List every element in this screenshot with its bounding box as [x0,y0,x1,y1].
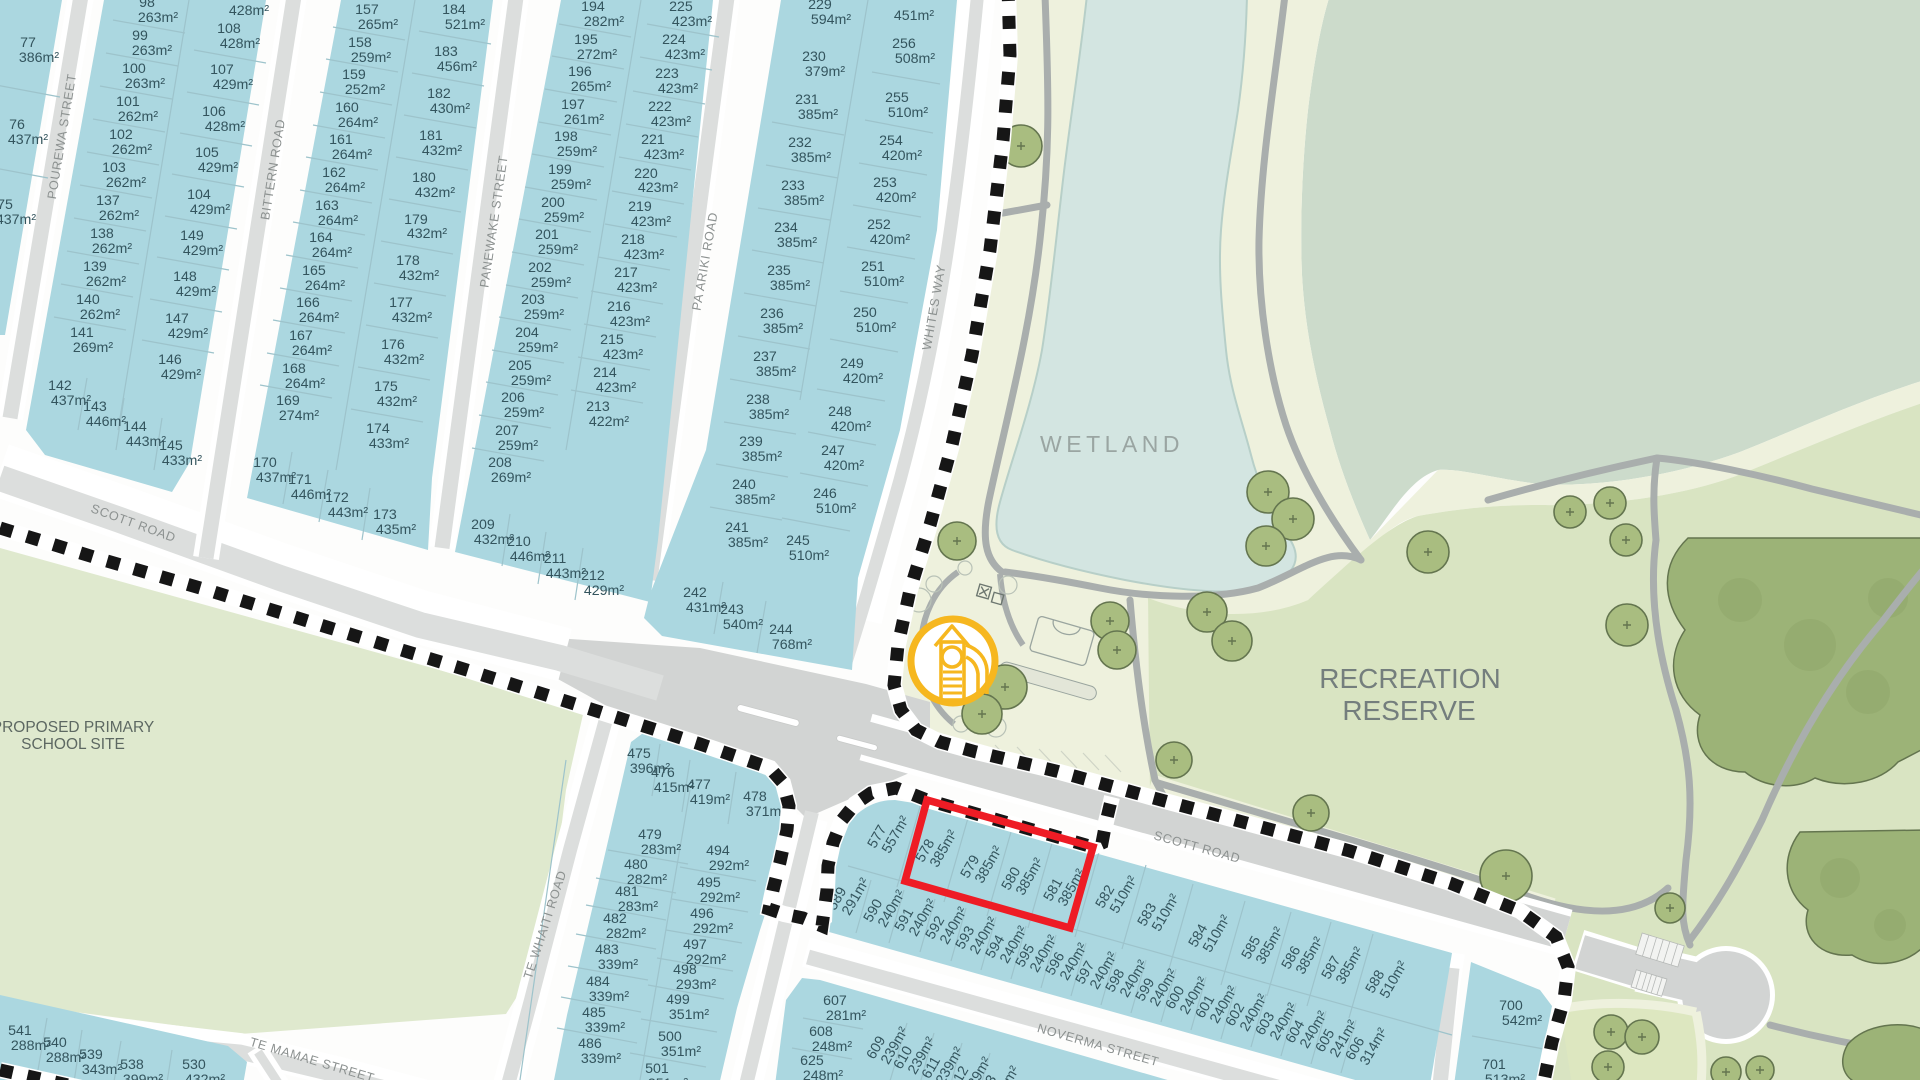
svg-text:513m²: 513m² [1485,1072,1525,1080]
svg-text:263m²: 263m² [125,76,165,92]
svg-text:245: 245 [786,533,810,549]
svg-text:141: 141 [70,325,94,341]
svg-text:158: 158 [348,35,372,51]
svg-text:423m²: 423m² [672,14,712,30]
svg-text:423m²: 423m² [638,180,678,196]
svg-text:137: 137 [96,193,120,209]
svg-text:176: 176 [381,337,405,353]
svg-text:385m²: 385m² [777,235,817,251]
svg-text:423m²: 423m² [610,314,650,330]
svg-text:385m²: 385m² [791,150,831,166]
svg-text:420m²: 420m² [831,419,871,435]
svg-text:107: 107 [210,62,234,78]
svg-text:253: 253 [873,175,897,191]
svg-text:420m²: 420m² [870,232,910,248]
svg-text:423m²: 423m² [658,81,698,97]
svg-text:108: 108 [217,21,241,37]
svg-text:231: 231 [795,92,819,108]
svg-text:202: 202 [528,260,552,276]
svg-text:170: 170 [253,455,277,471]
svg-text:482: 482 [603,911,627,927]
svg-text:SCHOOL SITE: SCHOOL SITE [21,736,125,753]
svg-text:282m²: 282m² [584,14,624,30]
svg-text:175: 175 [374,379,398,395]
svg-text:475: 475 [627,746,651,762]
svg-text:443m²: 443m² [328,505,368,521]
svg-text:143: 143 [83,399,107,415]
svg-text:262m²: 262m² [112,142,152,158]
svg-text:432m²: 432m² [422,143,462,159]
svg-text:429m²: 429m² [176,284,216,300]
svg-text:432m²: 432m² [407,226,447,242]
svg-text:423m²: 423m² [596,380,636,396]
svg-text:250: 250 [853,305,877,321]
svg-text:259m²: 259m² [351,50,391,66]
svg-text:255: 255 [885,90,909,106]
svg-text:225: 225 [669,0,693,15]
svg-text:139: 139 [83,259,107,275]
svg-text:501: 501 [645,1061,669,1077]
svg-text:259m²: 259m² [544,210,584,226]
svg-text:249: 249 [840,356,864,372]
svg-text:237: 237 [753,349,777,365]
svg-text:530: 530 [182,1057,206,1073]
svg-text:484: 484 [586,974,610,990]
svg-text:171: 171 [288,472,312,488]
svg-text:269m²: 269m² [491,470,531,486]
svg-text:385m²: 385m² [749,407,789,423]
svg-text:147: 147 [165,311,189,327]
svg-text:385m²: 385m² [728,535,768,551]
svg-text:446m²: 446m² [86,414,126,430]
svg-text:422m²: 422m² [589,414,629,430]
svg-text:541: 541 [8,1023,32,1039]
svg-text:235: 235 [767,263,791,279]
svg-text:274m²: 274m² [279,408,319,424]
svg-text:478: 478 [743,789,767,805]
svg-text:510m²: 510m² [816,501,856,517]
svg-text:423m²: 423m² [603,347,643,363]
svg-text:224: 224 [662,32,686,48]
svg-text:385m²: 385m² [735,492,775,508]
svg-text:213: 213 [586,399,610,415]
svg-text:437m²: 437m² [0,212,36,228]
svg-text:212: 212 [581,568,605,584]
svg-text:207: 207 [495,423,519,439]
svg-text:428m²: 428m² [205,119,245,135]
svg-text:510m²: 510m² [856,320,896,336]
svg-text:510m²: 510m² [888,105,928,121]
svg-text:437m²: 437m² [8,132,48,148]
svg-text:343m²: 343m² [82,1062,122,1078]
svg-text:292m²: 292m² [693,921,733,937]
svg-text:206: 206 [501,390,525,406]
svg-text:510m²: 510m² [864,274,904,290]
svg-text:105: 105 [195,145,219,161]
svg-text:283m²: 283m² [641,842,681,858]
svg-text:432m²: 432m² [377,394,417,410]
svg-text:510m²: 510m² [789,548,829,564]
svg-text:172: 172 [325,490,349,506]
svg-text:429m²: 429m² [183,243,223,259]
svg-text:479: 479 [638,827,662,843]
svg-text:145: 145 [159,438,183,454]
svg-text:166: 166 [296,295,320,311]
svg-text:264m²: 264m² [299,310,339,326]
svg-text:204: 204 [515,325,539,341]
svg-text:148: 148 [173,269,197,285]
svg-text:205: 205 [508,358,532,374]
svg-text:262m²: 262m² [99,208,139,224]
svg-text:339m²: 339m² [589,989,629,1005]
svg-text:215: 215 [600,332,624,348]
svg-text:163: 163 [315,198,339,214]
svg-text:385m²: 385m² [798,107,838,123]
svg-text:498: 498 [673,962,697,978]
svg-text:246: 246 [813,486,837,502]
svg-text:157: 157 [355,2,379,18]
svg-text:433m²: 433m² [369,436,409,452]
svg-text:252: 252 [867,217,891,233]
svg-text:209: 209 [471,517,495,533]
svg-text:100: 100 [122,61,146,77]
svg-text:292m²: 292m² [709,858,749,874]
svg-text:221: 221 [641,132,665,148]
svg-text:497: 497 [683,937,707,953]
svg-text:385m²: 385m² [756,364,796,380]
svg-text:230: 230 [802,49,826,65]
svg-text:159: 159 [342,67,366,83]
svg-text:259m²: 259m² [498,438,538,454]
svg-text:264m²: 264m² [292,343,332,359]
svg-text:521m²: 521m² [445,17,485,33]
svg-text:700: 700 [1499,998,1523,1014]
svg-text:499: 499 [666,992,690,1008]
svg-text:174: 174 [366,421,390,437]
svg-text:264m²: 264m² [332,147,372,163]
svg-text:540: 540 [43,1035,67,1051]
svg-text:168: 168 [282,361,306,377]
svg-text:430m²: 430m² [430,101,470,117]
svg-text:240: 240 [732,477,756,493]
svg-text:265m²: 265m² [358,17,398,33]
svg-text:432m²: 432m² [392,310,432,326]
svg-text:199: 199 [548,162,572,178]
svg-text:351m²: 351m² [661,1044,701,1060]
svg-text:144: 144 [123,419,147,435]
svg-text:142: 142 [48,378,72,394]
svg-text:768m²: 768m² [772,637,812,653]
svg-text:236: 236 [760,306,784,322]
svg-text:701: 701 [1482,1057,1506,1073]
svg-text:165: 165 [302,263,326,279]
svg-text:429m²: 429m² [213,77,253,93]
svg-text:429m²: 429m² [161,367,201,383]
svg-text:180: 180 [412,170,436,186]
svg-text:429m²: 429m² [190,202,230,218]
svg-text:262m²: 262m² [92,241,132,257]
svg-text:429m²: 429m² [168,326,208,342]
svg-text:99: 99 [132,28,148,44]
svg-text:293m²: 293m² [676,977,716,993]
svg-text:259m²: 259m² [524,307,564,323]
svg-text:538: 538 [120,1057,144,1073]
svg-text:263m²: 263m² [138,10,178,26]
svg-text:241: 241 [725,520,749,536]
svg-text:232: 232 [788,135,812,151]
svg-text:203: 203 [521,292,545,308]
svg-text:264m²: 264m² [305,278,345,294]
svg-text:264m²: 264m² [312,245,352,261]
svg-text:265m²: 265m² [571,79,611,95]
svg-text:162: 162 [322,165,346,181]
svg-text:339m²: 339m² [581,1051,621,1067]
svg-text:184: 184 [442,2,466,18]
svg-text:198: 198 [554,129,578,145]
svg-text:243: 243 [720,602,744,618]
svg-text:256: 256 [892,36,916,52]
svg-text:485: 485 [582,1005,606,1021]
svg-text:259m²: 259m² [504,405,544,421]
svg-text:292m²: 292m² [700,890,740,906]
svg-text:WETLAND: WETLAND [1040,431,1184,457]
svg-text:480: 480 [624,857,648,873]
svg-text:264m²: 264m² [325,180,365,196]
svg-text:456m²: 456m² [437,59,477,75]
svg-text:608: 608 [809,1024,833,1040]
svg-text:542m²: 542m² [1502,1013,1542,1029]
svg-text:423m²: 423m² [617,280,657,296]
svg-text:625: 625 [800,1053,824,1069]
svg-text:252m²: 252m² [345,82,385,98]
svg-text:PROPOSED PRIMARY: PROPOSED PRIMARY [0,719,154,736]
svg-text:433m²: 433m² [162,453,202,469]
svg-text:508m²: 508m² [895,51,935,67]
svg-text:138: 138 [90,226,114,242]
svg-text:196: 196 [568,64,592,80]
svg-text:149: 149 [180,228,204,244]
svg-text:106: 106 [202,104,226,120]
svg-text:104: 104 [187,187,211,203]
svg-text:262m²: 262m² [118,109,158,125]
svg-text:197: 197 [561,97,585,113]
svg-text:75: 75 [0,197,13,213]
svg-text:248: 248 [828,404,852,420]
svg-text:223: 223 [655,66,679,82]
svg-text:476: 476 [651,765,675,781]
svg-text:423m²: 423m² [651,114,691,130]
svg-text:385m²: 385m² [770,278,810,294]
svg-text:194: 194 [581,0,605,15]
svg-text:428m²: 428m² [220,36,260,52]
svg-text:264m²: 264m² [285,376,325,392]
svg-text:423m²: 423m² [665,47,705,63]
svg-text:234: 234 [774,220,798,236]
svg-text:486: 486 [578,1036,602,1052]
svg-text:339m²: 339m² [585,1020,625,1036]
svg-text:254: 254 [879,133,903,149]
svg-text:244: 244 [769,622,793,638]
svg-text:594m²: 594m² [811,12,851,28]
svg-text:242: 242 [683,585,707,601]
svg-text:432m²: 432m² [399,268,439,284]
svg-text:161: 161 [329,132,353,148]
svg-text:103: 103 [102,160,126,176]
svg-text:419m²: 419m² [690,792,730,808]
svg-text:140: 140 [76,292,100,308]
svg-text:251: 251 [861,259,885,275]
svg-text:262m²: 262m² [106,175,146,191]
svg-text:200: 200 [541,195,565,211]
svg-text:272m²: 272m² [577,47,617,63]
svg-text:263m²: 263m² [132,43,172,59]
svg-text:607: 607 [823,993,847,1009]
svg-text:160: 160 [335,100,359,116]
svg-text:167: 167 [289,328,313,344]
svg-text:262m²: 262m² [80,307,120,323]
svg-text:496: 496 [690,906,714,922]
svg-text:101: 101 [116,94,140,110]
svg-text:420m²: 420m² [824,458,864,474]
svg-text:351m²: 351m² [669,1007,709,1023]
svg-text:540m²: 540m² [723,617,763,633]
svg-text:481: 481 [615,884,639,900]
svg-text:432m²: 432m² [185,1072,225,1080]
svg-text:264m²: 264m² [338,115,378,131]
svg-text:181: 181 [419,128,443,144]
svg-text:262m²: 262m² [86,274,126,290]
svg-text:77: 77 [20,35,36,51]
svg-text:259m²: 259m² [531,275,571,291]
svg-text:429m²: 429m² [584,583,624,599]
svg-text:264m²: 264m² [318,213,358,229]
svg-text:216: 216 [607,299,631,315]
svg-text:222: 222 [648,99,672,115]
svg-text:183: 183 [434,44,458,60]
svg-text:169: 169 [276,393,300,409]
svg-text:500: 500 [658,1029,682,1045]
svg-text:208: 208 [488,455,512,471]
svg-text:420m²: 420m² [843,371,883,387]
svg-text:211: 211 [544,551,567,567]
svg-text:195: 195 [574,32,598,48]
svg-text:233: 233 [781,178,805,194]
svg-text:282m²: 282m² [606,926,646,942]
svg-text:217: 217 [614,265,638,281]
svg-text:432m²: 432m² [415,185,455,201]
svg-text:210: 210 [507,534,531,550]
svg-text:177: 177 [389,295,413,311]
svg-text:219: 219 [628,199,652,215]
svg-text:351m²: 351m² [648,1076,688,1080]
svg-text:164: 164 [309,230,333,246]
svg-text:423m²: 423m² [644,147,684,163]
svg-text:201: 201 [535,227,559,243]
svg-text:102: 102 [109,127,133,143]
svg-text:429m²: 429m² [198,160,238,176]
svg-text:238: 238 [746,392,770,408]
svg-text:385m²: 385m² [784,193,824,209]
svg-text:483: 483 [595,942,619,958]
svg-text:76: 76 [9,117,25,133]
svg-text:178: 178 [396,253,420,269]
svg-text:259m²: 259m² [518,340,558,356]
svg-text:379m²: 379m² [805,64,845,80]
svg-text:339m²: 339m² [598,957,638,973]
svg-text:420m²: 420m² [876,190,916,206]
svg-text:494: 494 [706,843,730,859]
svg-text:RESERVE: RESERVE [1342,695,1475,726]
svg-text:248m²: 248m² [803,1068,843,1080]
svg-text:432m²: 432m² [384,352,424,368]
svg-text:435m²: 435m² [376,522,416,538]
svg-text:218: 218 [621,232,645,248]
svg-text:451m²: 451m² [894,8,934,24]
svg-text:428m²: 428m² [229,3,269,19]
svg-text:495: 495 [697,875,721,891]
svg-text:RECREATION: RECREATION [1319,663,1501,694]
svg-text:259m²: 259m² [551,177,591,193]
svg-text:386m²: 386m² [19,50,59,66]
svg-text:399m²: 399m² [123,1072,163,1080]
svg-text:247: 247 [821,443,845,459]
svg-text:259m²: 259m² [511,373,551,389]
svg-text:420m²: 420m² [882,148,922,164]
svg-text:146: 146 [158,352,182,368]
svg-text:385m²: 385m² [742,449,782,465]
svg-text:385m²: 385m² [763,321,803,337]
svg-text:423m²: 423m² [624,247,664,263]
svg-text:259m²: 259m² [557,144,597,160]
svg-text:539: 539 [79,1047,103,1063]
svg-text:269m²: 269m² [73,340,113,356]
svg-text:423m²: 423m² [631,214,671,230]
svg-text:173: 173 [373,507,397,523]
svg-text:477: 477 [687,777,711,793]
svg-text:239: 239 [739,434,763,450]
svg-text:214: 214 [593,365,617,381]
svg-text:182: 182 [427,86,451,102]
svg-text:261m²: 261m² [564,112,604,128]
svg-text:259m²: 259m² [538,242,578,258]
svg-text:281m²: 281m² [826,1008,866,1024]
